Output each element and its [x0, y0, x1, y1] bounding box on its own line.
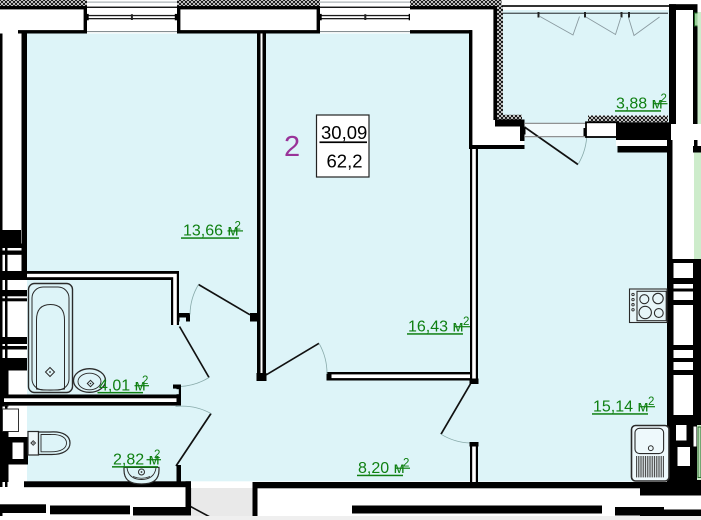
svg-text:2: 2 [284, 131, 300, 163]
svg-text:62,2: 62,2 [327, 151, 363, 172]
svg-text:30,09: 30,09 [321, 122, 367, 143]
